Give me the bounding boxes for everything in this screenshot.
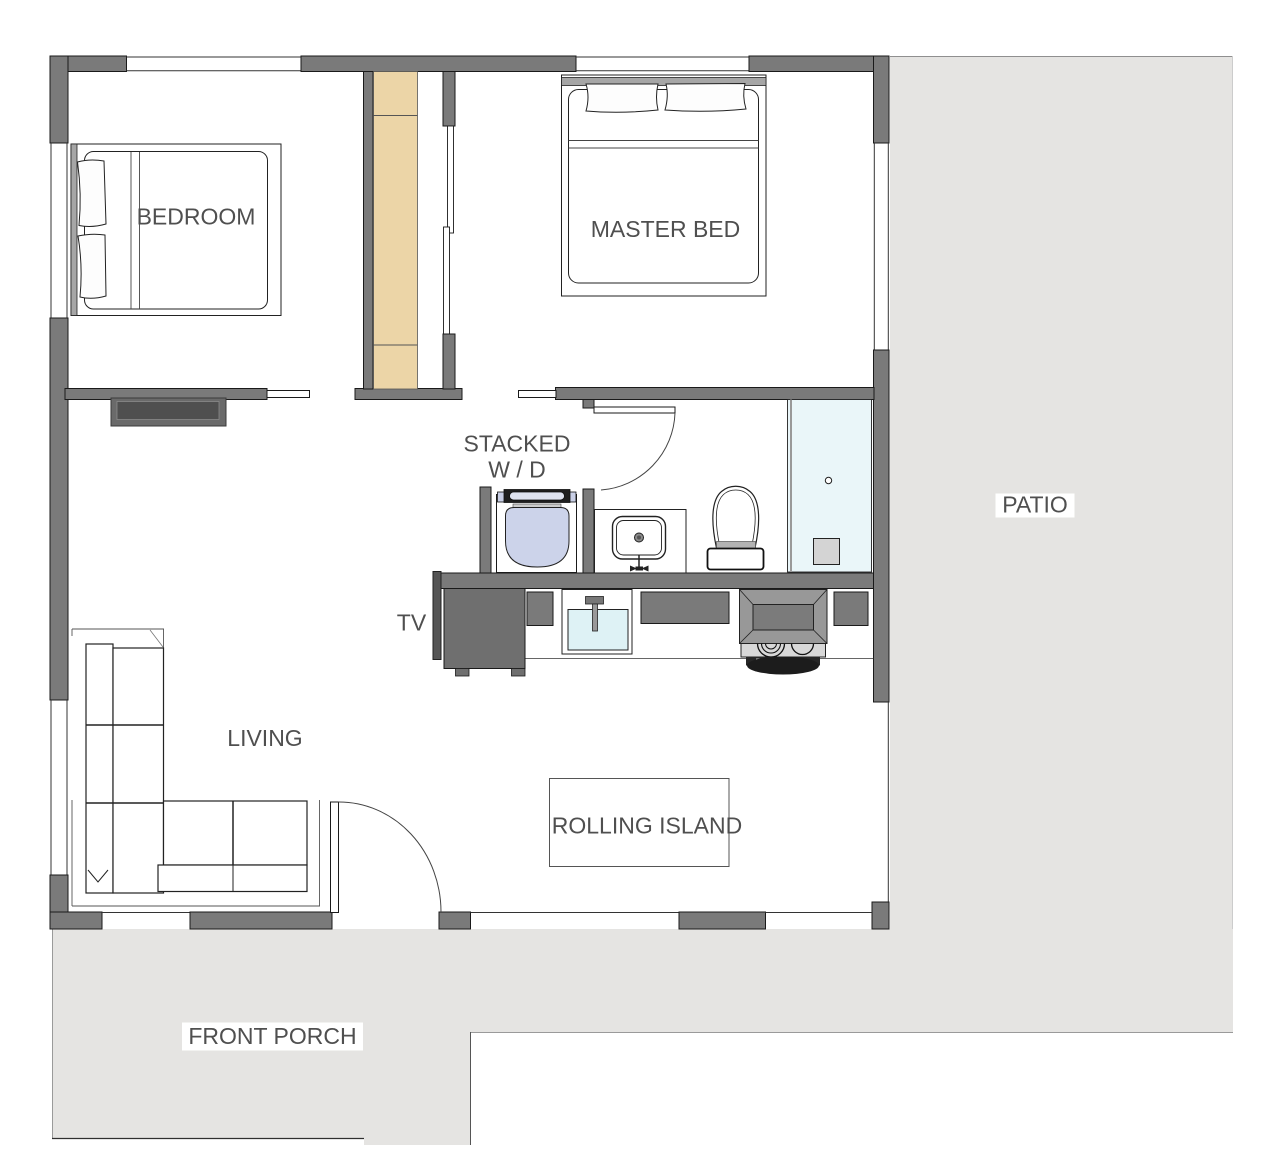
- svg-text:TV: TV: [397, 610, 427, 636]
- svg-text:ROLLING ISLAND: ROLLING ISLAND: [552, 813, 742, 839]
- svg-text:FRONT PORCH: FRONT PORCH: [188, 1023, 356, 1049]
- svg-text:BEDROOM: BEDROOM: [137, 204, 256, 230]
- svg-text:W / D: W / D: [488, 457, 546, 483]
- svg-text:LIVING: LIVING: [227, 725, 302, 751]
- svg-text:STACKED: STACKED: [464, 431, 571, 457]
- svg-text:MASTER BED: MASTER BED: [591, 216, 741, 242]
- svg-text:PATIO: PATIO: [1002, 492, 1068, 518]
